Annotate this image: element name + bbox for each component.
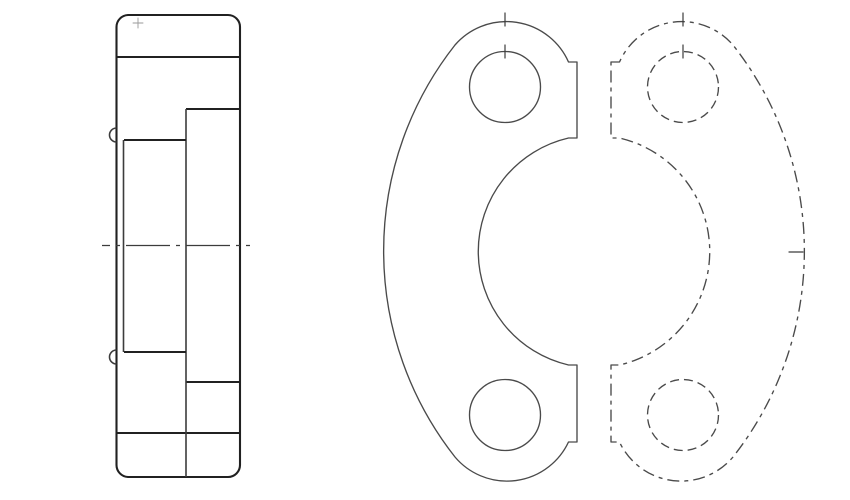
left-half-outline <box>384 22 577 482</box>
bolt-hole-bottom-left <box>470 380 541 451</box>
drawing-canvas <box>0 0 850 500</box>
flange-side-section-view <box>102 15 250 477</box>
flange-front-view <box>384 13 805 481</box>
right-half-outline-dashed <box>611 22 804 482</box>
bolt-hole-top-right-dashed <box>648 52 719 123</box>
corner-center-mark <box>133 18 143 28</box>
bolt-hole-top-left <box>470 52 541 123</box>
bolt-hole-bottom-right-dashed <box>648 380 719 451</box>
split-flange-technical-drawing <box>0 0 850 500</box>
